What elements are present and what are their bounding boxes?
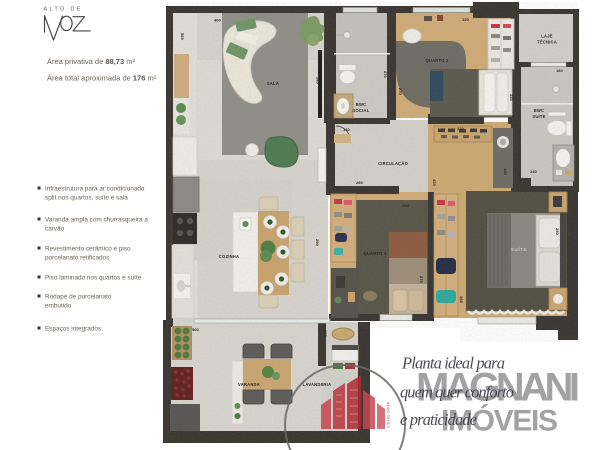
svg-text:210: 210 <box>457 126 464 131</box>
svg-text:265: 265 <box>356 180 363 185</box>
svg-text:Espaços integrados: Espaços integrados <box>45 326 101 333</box>
svg-text:250: 250 <box>402 203 409 208</box>
svg-text:CIRCULAÇÃO: CIRCULAÇÃO <box>378 161 409 166</box>
svg-text:Infraestrutura para ar condici: Infraestrutura para ar condicionado <box>45 186 145 193</box>
svg-text:140: 140 <box>503 168 508 175</box>
svg-text:233: 233 <box>509 94 514 101</box>
svg-text:Varanda ampla com churrasqueir: Varanda ampla com churrasqueira a <box>45 217 148 224</box>
svg-text:VARANDA: VARANDA <box>238 382 260 387</box>
svg-text:120: 120 <box>462 17 469 22</box>
svg-text:270: 270 <box>398 88 403 95</box>
svg-text:TÉCNICA: TÉCNICA <box>537 40 557 45</box>
svg-text:250: 250 <box>555 228 560 235</box>
svg-text:embutido: embutido <box>45 303 72 310</box>
svg-text:Revestimento cerâmico e piso: Revestimento cerâmico e piso <box>45 246 131 253</box>
svg-text:275: 275 <box>419 276 424 283</box>
svg-text:LAJE: LAJE <box>541 34 552 39</box>
svg-text:290: 290 <box>315 239 320 246</box>
svg-text:Área privativa de 88,73 m²: Área privativa de 88,73 m² <box>47 57 135 66</box>
svg-text:160: 160 <box>556 68 563 73</box>
svg-text:270: 270 <box>383 71 388 78</box>
svg-text:Área total aproximada de 176 m: Área total aproximada de 176 m² <box>47 74 157 83</box>
svg-text:BWC: BWC <box>356 102 367 107</box>
svg-text:split nos quartos, suíte e sal: split nos quartos, suíte e sala <box>45 195 128 202</box>
svg-text:quem quer conforto: quem quer conforto <box>400 383 514 402</box>
svg-text:QUARTO 1: QUARTO 1 <box>363 251 387 256</box>
svg-text:140: 140 <box>530 169 537 174</box>
svg-text:SALA: SALA <box>267 81 279 86</box>
svg-text:porcelanato retificados: porcelanato retificados <box>45 255 109 262</box>
svg-text:569: 569 <box>180 33 185 40</box>
svg-text:235: 235 <box>323 330 328 337</box>
svg-text:365: 365 <box>459 296 464 303</box>
svg-text:400: 400 <box>214 18 221 23</box>
svg-text:140: 140 <box>343 127 350 132</box>
svg-text:Rodapé de porcelanato: Rodapé de porcelanato <box>45 294 112 301</box>
svg-text:carvão: carvão <box>45 226 65 233</box>
svg-text:BWC: BWC <box>534 108 545 113</box>
svg-text:430: 430 <box>432 179 437 186</box>
svg-text:LAVANDERIA: LAVANDERIA <box>303 382 332 387</box>
svg-text:ALTO DE: ALTO DE <box>44 7 83 13</box>
svg-text:COZINHA: COZINHA <box>219 254 239 259</box>
svg-text:QUARTO 2: QUARTO 2 <box>425 58 449 63</box>
svg-text:SUÍTE: SUÍTE <box>532 114 545 119</box>
svg-text:CIDADE IMPAR: CIDADE IMPAR <box>387 401 391 428</box>
svg-text:285: 285 <box>316 77 321 84</box>
svg-text:e praticidade: e praticidade <box>400 410 477 429</box>
svg-text:500: 500 <box>192 327 199 332</box>
svg-text:SOCIAL: SOCIAL <box>353 108 370 113</box>
svg-text:Piso laminado nos quartos e su: Piso laminado nos quartos e suíte <box>45 275 142 282</box>
